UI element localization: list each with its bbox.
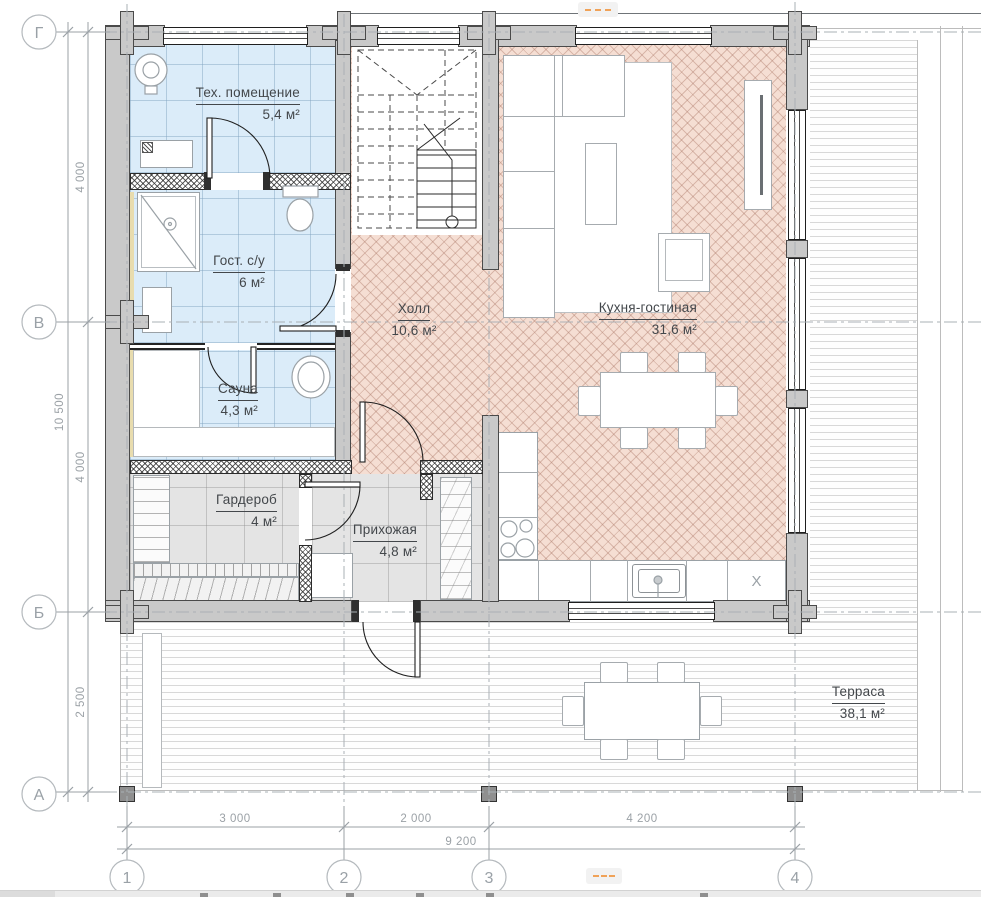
armchair-cushion <box>665 239 703 281</box>
wall-stair-east <box>482 25 499 270</box>
terrace-chair <box>657 662 685 683</box>
counter-divider <box>498 517 538 518</box>
terrace-table <box>584 682 700 740</box>
window <box>575 27 712 45</box>
dim-h2: 2 000 <box>400 813 431 825</box>
dim-v2: 4 000 <box>75 451 87 482</box>
counter-divider <box>590 560 591 602</box>
wall-tech-south <box>130 173 207 190</box>
terrace-bench <box>142 633 162 788</box>
counter-divider <box>538 560 539 602</box>
axis-col-label: 1 <box>123 870 132 887</box>
floor-plan-canvas[interactable]: X <box>0 0 981 897</box>
wall-kitchen-west <box>482 415 499 602</box>
wall-wardrobe-north <box>130 460 352 474</box>
room-area: 4,8 м² <box>317 542 417 562</box>
tv-stand <box>744 80 772 210</box>
room-area: 4 м² <box>177 512 277 532</box>
dining-chair <box>620 352 648 373</box>
terrace-rail-line <box>940 26 941 792</box>
door-jamb <box>413 600 420 622</box>
terrace-chair <box>657 739 685 760</box>
counter-divider <box>627 560 628 602</box>
wardrobe-hangers <box>133 577 299 601</box>
dimension-handle-chip[interactable] <box>578 2 618 17</box>
room-name: Прихожая <box>353 520 417 542</box>
room-label-bathroom: Гост. с/у 6 м² <box>185 251 265 294</box>
dimension-handle-chip[interactable] <box>586 868 622 884</box>
wall-tech-south <box>265 173 351 190</box>
terrace-rail-line <box>962 26 963 792</box>
roof-overhang-line <box>808 28 981 29</box>
door-jamb <box>352 600 359 622</box>
window <box>377 27 460 45</box>
axis-col-label: 3 <box>485 870 494 887</box>
window <box>788 110 806 240</box>
orange-dash-icon <box>585 9 611 11</box>
axis-col-label: 4 <box>791 870 800 887</box>
column-cross <box>337 11 351 55</box>
room-label-entry: Прихожая 4,8 м² <box>317 520 417 563</box>
room-name: Сауна <box>218 379 258 401</box>
dim-v1: 4 000 <box>75 161 87 192</box>
door-jamb <box>336 264 350 271</box>
column-cross <box>788 11 802 55</box>
room-name: Гардероб <box>216 490 277 512</box>
wall-wardrobe-partition-stub <box>299 474 312 488</box>
kitchen-sink-basin <box>638 569 680 593</box>
column-cross <box>788 590 802 634</box>
dim-v3: 2 500 <box>75 686 87 717</box>
axis-row-label: Г <box>35 25 44 42</box>
door-jamb <box>336 330 350 337</box>
sauna-bench-low <box>133 427 335 457</box>
wall-wardrobe-partition <box>299 545 312 602</box>
coffee-table <box>585 143 617 225</box>
terrace-chair <box>600 739 628 760</box>
room-name: Холл <box>398 299 431 321</box>
roof-outline-top <box>346 13 981 14</box>
dim-total-horizontal: 9 200 <box>445 836 476 848</box>
terrace-post <box>481 786 497 802</box>
counter-divider <box>686 560 687 602</box>
terrace-post <box>119 786 135 802</box>
dining-chair <box>678 352 706 373</box>
terrace-chair <box>562 696 584 726</box>
dining-chair <box>578 386 601 416</box>
room-label-wardrobe: Гардероб 4 м² <box>177 490 277 533</box>
terrace-chair <box>600 662 628 683</box>
dim-h1: 3 000 <box>219 813 250 825</box>
axis-row-label: А <box>34 787 45 804</box>
appliance-x-mark: X <box>727 560 786 602</box>
column-cross <box>120 300 134 344</box>
sofa-left-arm <box>503 55 555 318</box>
wall-sauna-partition <box>130 343 205 350</box>
room-area: 6 м² <box>185 273 265 293</box>
terrace-chair <box>700 696 722 726</box>
terrace-edge-bottom <box>120 790 962 791</box>
floor-staircase <box>352 40 482 235</box>
room-name: Кухня-гостиная <box>599 298 697 320</box>
wall-pier <box>420 474 433 500</box>
room-area: 5,4 м² <box>160 105 300 125</box>
counter-divider <box>498 472 538 473</box>
room-label-techroom: Тех. помещение 5,4 м² <box>160 83 300 126</box>
room-label-sauna: Сауна 4,3 м² <box>178 379 258 422</box>
dim-h3: 4 200 <box>626 813 657 825</box>
column-cross <box>120 590 134 634</box>
room-label-terrace: Терраса 38,1 м² <box>795 682 885 725</box>
entry-closet <box>440 477 472 600</box>
wall-interior-west <box>335 332 351 467</box>
room-name: Гост. с/у <box>213 251 265 273</box>
wardrobe-rod <box>133 563 299 577</box>
wall-post-right <box>786 240 808 258</box>
clipped-bottom-row <box>0 890 981 897</box>
dining-chair <box>715 386 738 416</box>
wall-interior-west <box>335 40 351 269</box>
wardrobe-shelves <box>133 475 170 563</box>
axis-col-label: 2 <box>340 870 349 887</box>
terrace-post <box>787 786 803 802</box>
tv-screen <box>760 95 763 195</box>
terrace-edge-left <box>120 622 121 790</box>
terrace-edge-line <box>917 40 918 790</box>
wall-sauna-partition <box>257 343 335 350</box>
door-jamb <box>263 172 270 190</box>
room-name: Тех. помещение <box>196 83 300 105</box>
axis-row-label: В <box>34 315 45 332</box>
window <box>788 408 806 533</box>
window <box>788 258 806 390</box>
window <box>163 27 308 45</box>
wall-post-right <box>786 390 808 408</box>
wall-entry-north <box>420 460 483 474</box>
room-area: 4,3 м² <box>178 401 258 421</box>
room-area: 10,6 м² <box>383 321 445 341</box>
room-area: 38,1 м² <box>795 704 885 724</box>
room-label-hall: Холл 10,6 м² <box>383 299 445 342</box>
wall-exterior-bottom <box>420 600 570 622</box>
dining-chair <box>678 427 706 449</box>
room-name: Терраса <box>832 682 885 704</box>
orange-dash-icon <box>593 875 615 877</box>
window-kitchen <box>568 602 715 620</box>
washer-hatch <box>142 142 153 153</box>
dining-chair <box>620 427 648 449</box>
column-cross <box>120 11 134 55</box>
dim-total-vertical: 10 500 <box>54 393 66 431</box>
door-jamb <box>204 172 211 190</box>
axis-row-label: Б <box>34 605 45 622</box>
dining-table <box>600 372 716 428</box>
room-area: 31,6 м² <box>565 320 697 340</box>
kitchen-counter-left <box>498 432 538 560</box>
room-label-kitchen-living: Кухня-гостиная 31,6 м² <box>565 298 697 341</box>
column-cross <box>482 11 496 55</box>
